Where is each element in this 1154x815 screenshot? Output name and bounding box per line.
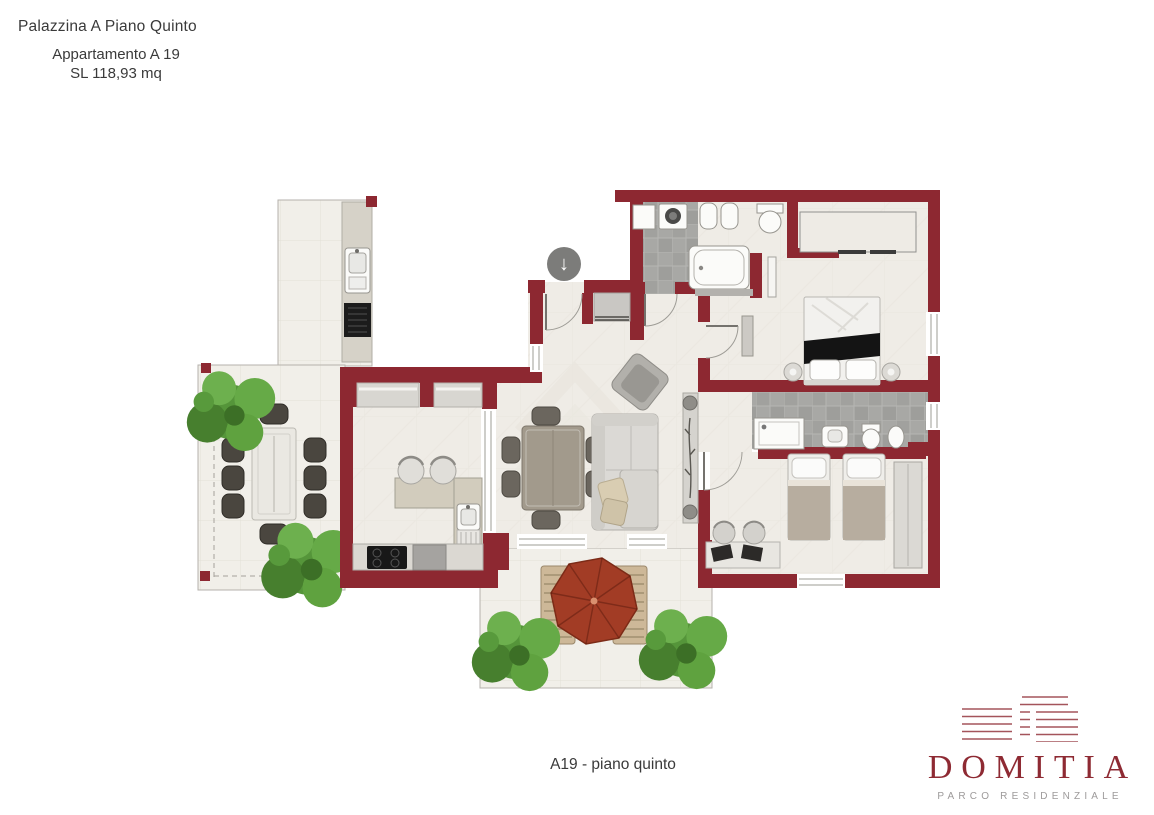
dining-table: [522, 426, 584, 510]
kitchen-window: [357, 383, 482, 407]
plan-subtitle-block: Appartamento A 19 SL 118,93 mq: [18, 46, 214, 82]
desk: [706, 542, 780, 568]
entrance-arrow-icon: ↓: [547, 247, 581, 281]
bidet: [888, 426, 904, 448]
plan-title-apartment: Appartamento A 19: [18, 46, 214, 63]
outdoor-grill: [344, 303, 371, 337]
plan-title-building: Palazzina A Piano Quinto: [18, 18, 197, 36]
outdoor-sink: [345, 248, 370, 293]
plan-caption: A19 - piano quinto: [498, 756, 728, 774]
hall-window: [530, 344, 543, 372]
shower: [754, 418, 804, 449]
desk-chair: [713, 522, 735, 544]
nightstand: [882, 363, 900, 381]
kitchen-sliding-glass: [481, 409, 496, 533]
brand-logo: DOMITIA PARCO RESIDENZIALE: [918, 690, 1138, 802]
balcony-post: [366, 196, 377, 207]
tub-shelf: [695, 289, 753, 296]
double-bed: [804, 297, 880, 385]
console-sideboard: [683, 393, 698, 523]
bath-sink: [721, 203, 738, 229]
bar-stool: [398, 457, 424, 484]
bathroom2-window: [926, 402, 942, 430]
single-bed: [843, 454, 885, 540]
toilet: [862, 424, 880, 449]
terrace-post: [200, 571, 210, 581]
sofa: [592, 414, 658, 530]
living-floor: [481, 380, 698, 548]
wardrobe-niche: [800, 212, 916, 254]
bath-sink: [700, 203, 717, 229]
bedroom2-window: [797, 574, 845, 589]
toilet: [757, 204, 783, 233]
kitchen-appliance: [413, 545, 446, 570]
brand-tagline: PARCO RESIDENZIALE: [918, 791, 1138, 802]
terrace-post: [201, 363, 211, 373]
balcony-kitchenette: [278, 196, 377, 366]
floorplan-page: Palazzina A Piano Quinto Appartamento A …: [0, 0, 1154, 815]
plan-title-surface: SL 118,93 mq: [18, 65, 214, 82]
kitchen-sink: [457, 504, 480, 546]
nightstand: [784, 363, 802, 381]
bath-sink: [822, 426, 848, 447]
brand-name: DOMITIA: [918, 749, 1138, 787]
anteroom-floor: [694, 390, 752, 452]
cooktop: [367, 546, 407, 569]
bedroom1-window: [926, 312, 942, 356]
single-bed: [788, 454, 830, 540]
building-facade-lines-icon: [918, 690, 1138, 742]
ensuite-door-leaf: [768, 257, 776, 297]
wardrobe: [894, 462, 922, 568]
bath-cabinet: [633, 205, 655, 229]
desk-chair: [743, 522, 765, 544]
washing-machine: [659, 204, 687, 229]
sliding-panel: [742, 316, 753, 356]
left-terrace: [187, 363, 355, 607]
bottom-terrace: [472, 548, 727, 691]
bathtub: [689, 246, 749, 289]
bar-stool: [430, 457, 456, 484]
